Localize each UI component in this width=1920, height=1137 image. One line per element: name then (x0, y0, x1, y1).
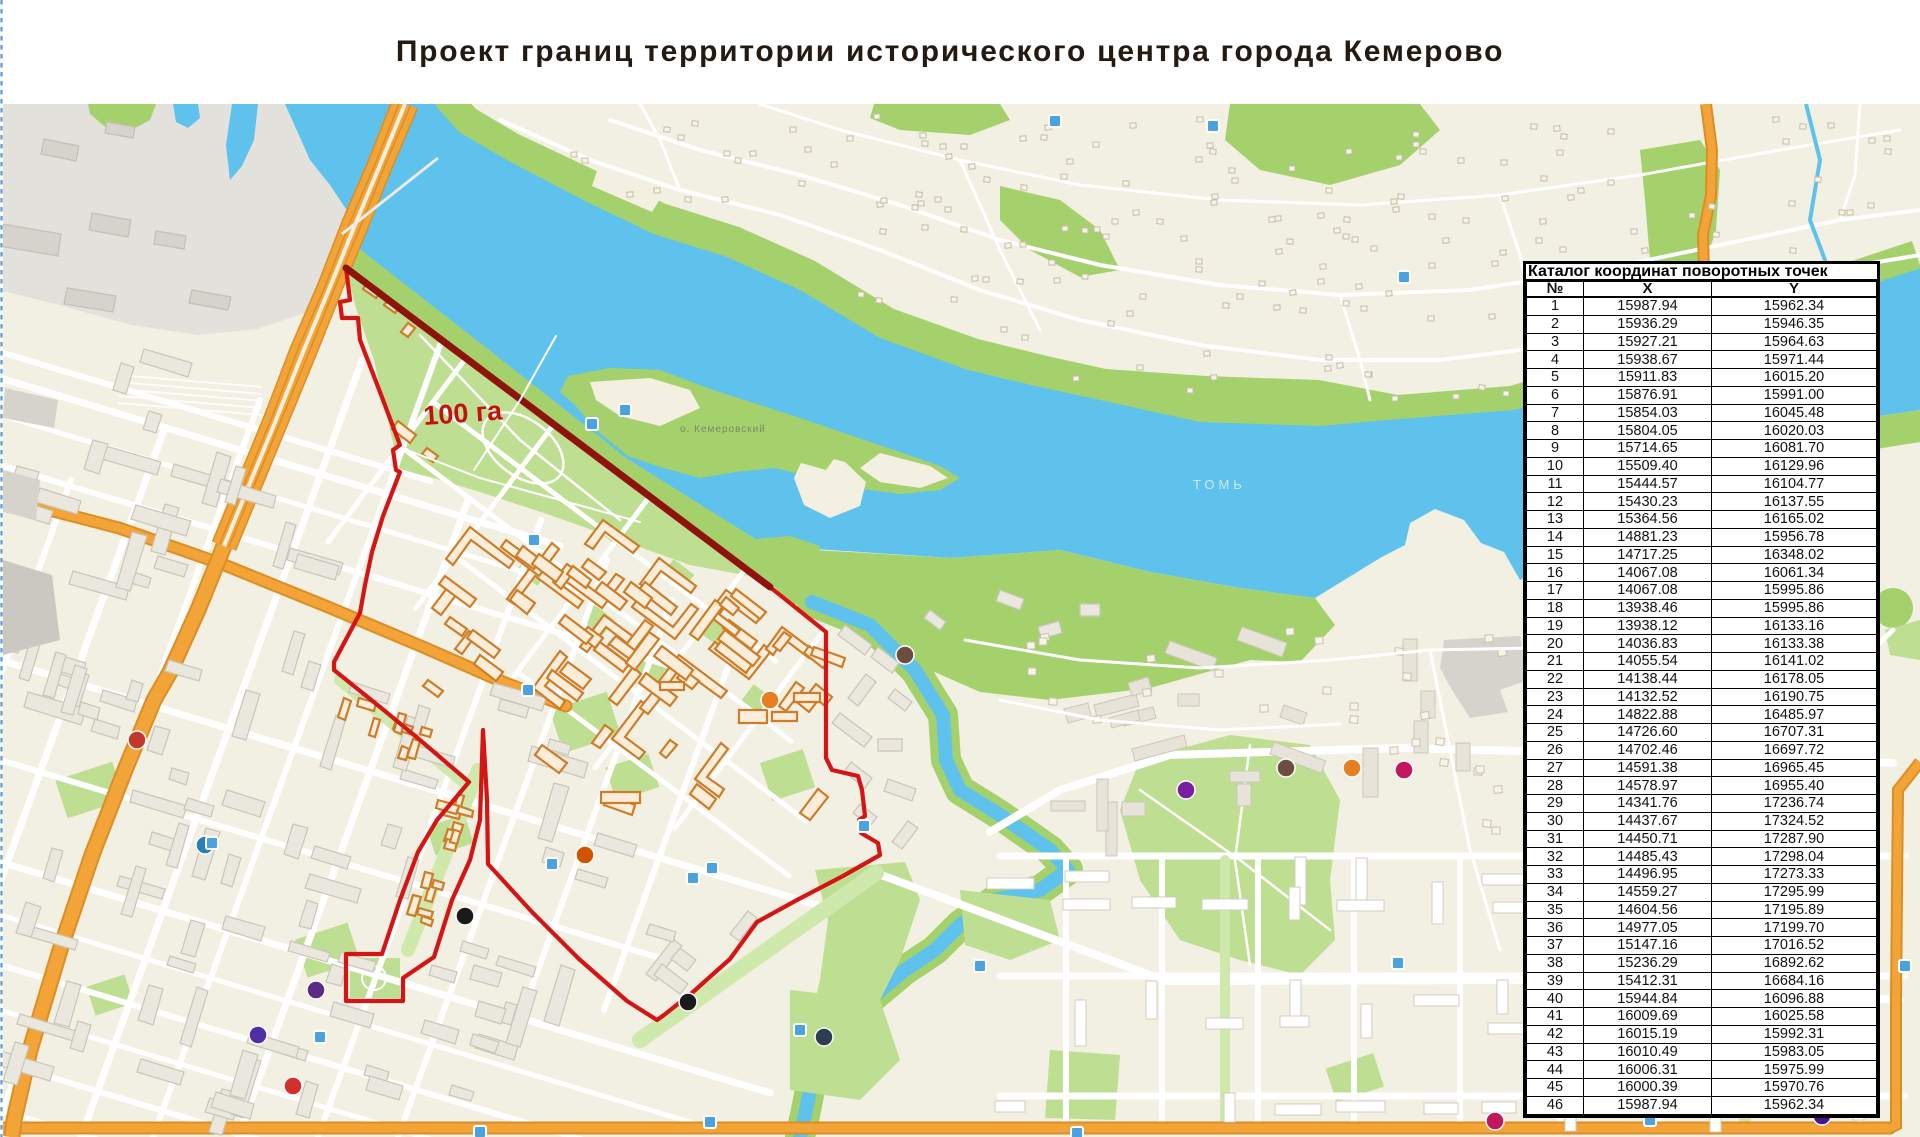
svg-text:о. Кемеровский: о. Кемеровский (680, 424, 766, 435)
svg-text:ТОМЬ: ТОМЬ (1193, 477, 1246, 492)
svg-text:100 га: 100 га (422, 395, 504, 430)
